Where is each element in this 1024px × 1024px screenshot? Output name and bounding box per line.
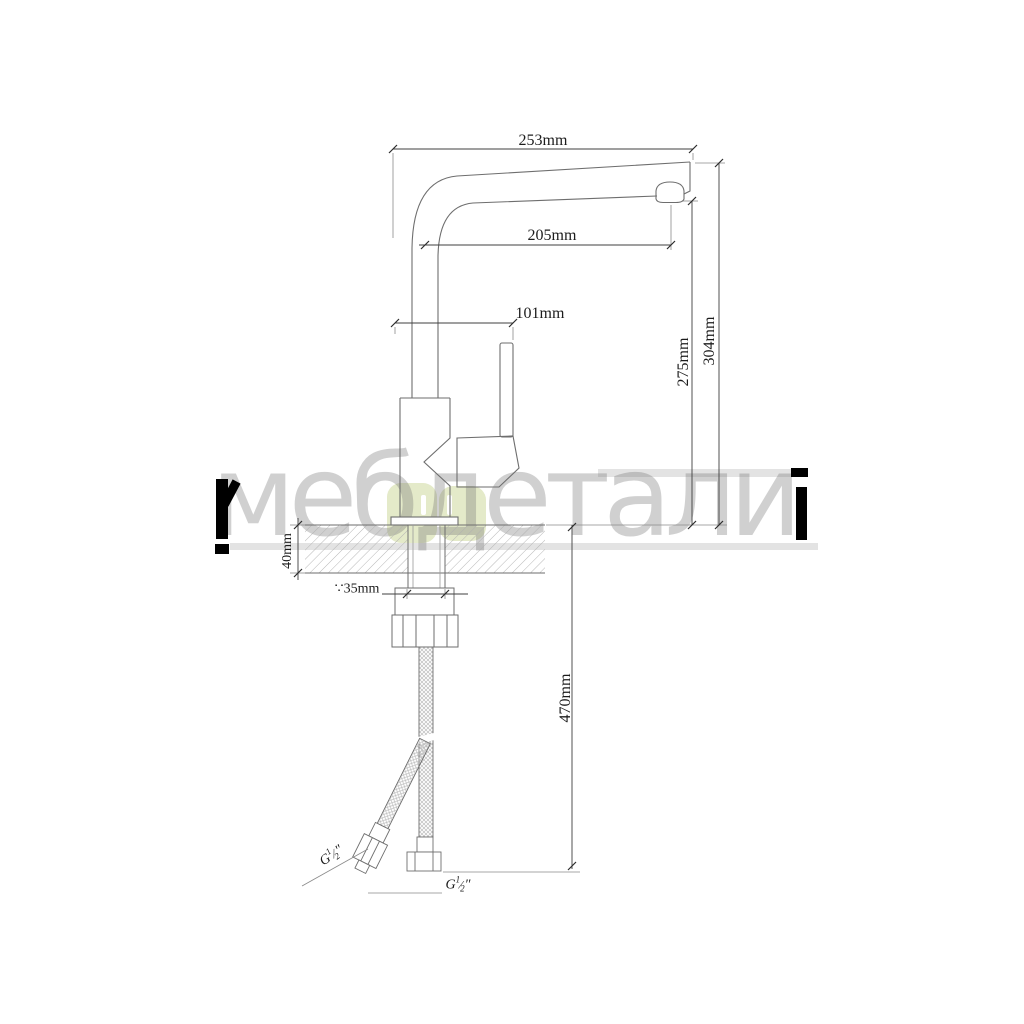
flexible-hoses bbox=[349, 647, 441, 877]
dimension-lines bbox=[298, 149, 719, 869]
dimension-ticks bbox=[294, 145, 723, 870]
technical-drawing bbox=[0, 0, 1024, 1024]
countertop bbox=[305, 525, 545, 573]
extension-lines bbox=[290, 153, 727, 893]
faucet-outline bbox=[391, 162, 690, 525]
faucet-technical-drawing-page: мебдетали 253mm 205mm 101mm 275mm 304mm … bbox=[0, 0, 1024, 1024]
